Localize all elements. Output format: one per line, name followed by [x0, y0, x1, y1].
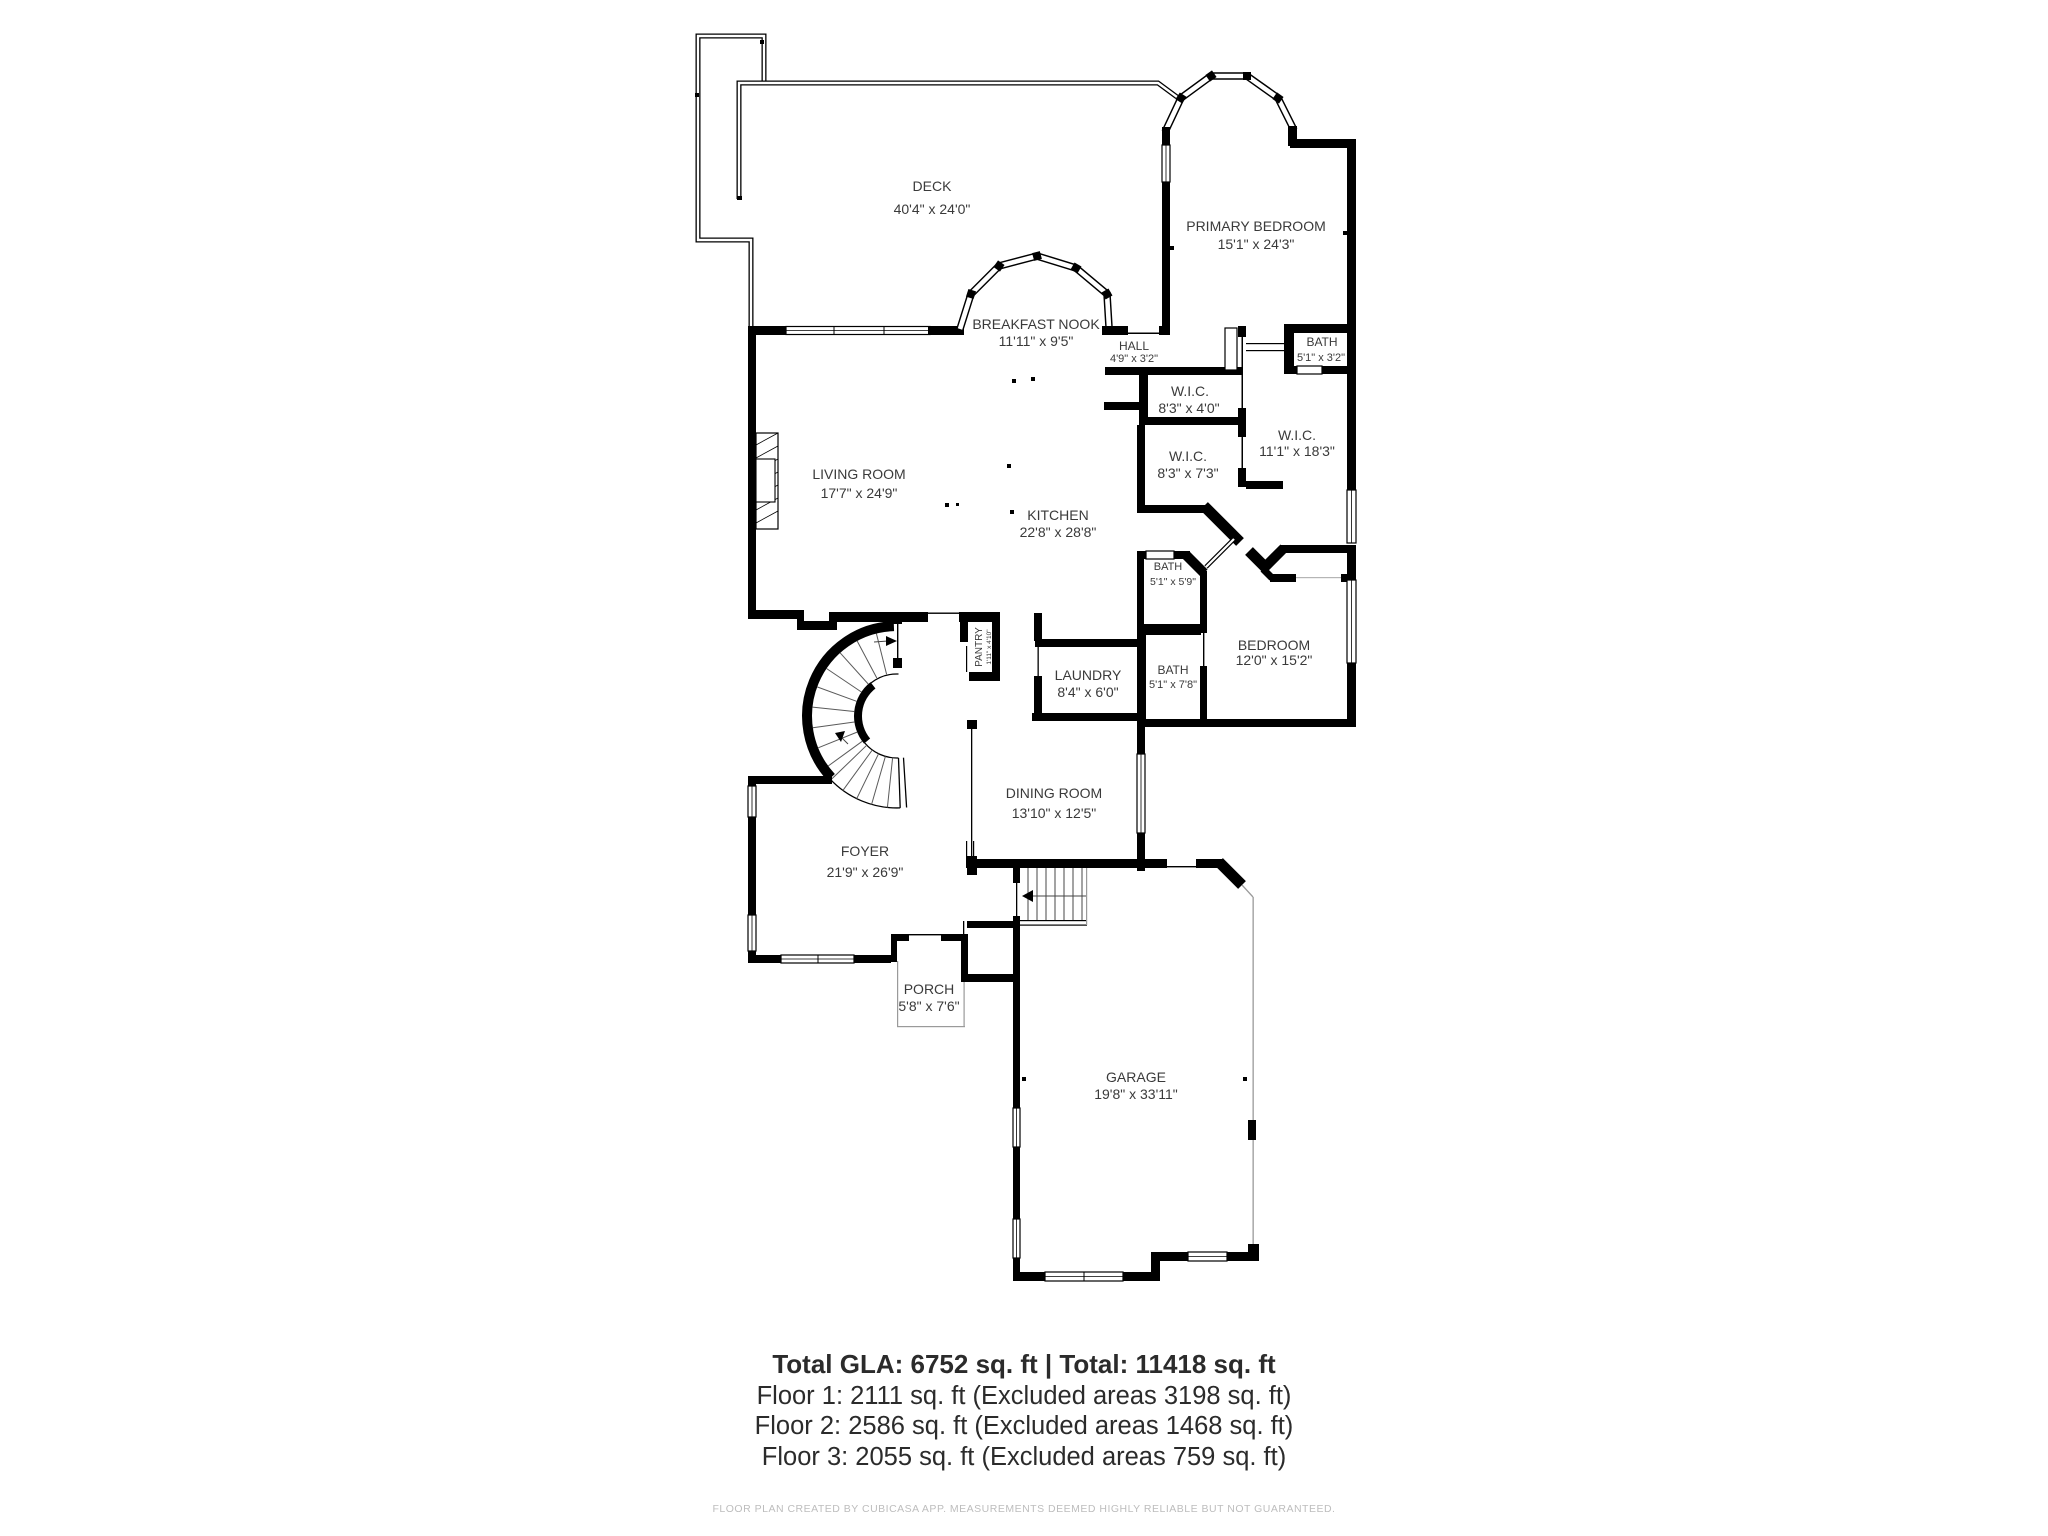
- svg-text:BATH: BATH: [1154, 561, 1183, 573]
- svg-text:Total GLA: 6752 sq. ft | Total: Total GLA: 6752 sq. ft | Total: 11418 sq…: [772, 1349, 1276, 1379]
- svg-text:8'3" x 7'3": 8'3" x 7'3": [1157, 465, 1218, 481]
- svg-text:FLOOR PLAN CREATED BY CUBICASA: FLOOR PLAN CREATED BY CUBICASA APP. MEAS…: [713, 1503, 1336, 1515]
- svg-text:W.I.C.: W.I.C.: [1169, 448, 1207, 464]
- svg-text:8'3" x 4'0": 8'3" x 4'0": [1158, 400, 1219, 416]
- svg-text:FOYER: FOYER: [841, 843, 889, 859]
- svg-text:HALL: HALL: [1119, 339, 1149, 353]
- svg-text:12'0" x 15'2": 12'0" x 15'2": [1236, 652, 1313, 668]
- svg-text:Floor 1: 2111 sq. ft (Excluded: Floor 1: 2111 sq. ft (Excluded areas 319…: [757, 1382, 1292, 1410]
- svg-text:15'1" x 24'3": 15'1" x 24'3": [1218, 236, 1295, 252]
- svg-text:13'10" x 12'5": 13'10" x 12'5": [1012, 805, 1097, 821]
- svg-text:19'8" x 33'11": 19'8" x 33'11": [1094, 1086, 1178, 1102]
- svg-text:5'1" x 3'2": 5'1" x 3'2": [1297, 352, 1345, 364]
- svg-text:BATH: BATH: [1306, 335, 1337, 349]
- svg-text:PORCH: PORCH: [904, 981, 955, 997]
- svg-text:17'7" x 24'9": 17'7" x 24'9": [821, 485, 898, 501]
- svg-text:PANTRY: PANTRY: [974, 627, 985, 667]
- svg-text:8'4" x 6'0": 8'4" x 6'0": [1057, 684, 1118, 700]
- svg-text:GARAGE: GARAGE: [1106, 1069, 1166, 1085]
- svg-text:5'1" x 5'9": 5'1" x 5'9": [1150, 576, 1196, 588]
- svg-text:11'1" x 18'3": 11'1" x 18'3": [1259, 443, 1335, 459]
- svg-text:DECK: DECK: [913, 178, 953, 194]
- svg-text:Floor 2: 2586 sq. ft (Excluded: Floor 2: 2586 sq. ft (Excluded areas 146…: [755, 1412, 1294, 1440]
- svg-text:DINING ROOM: DINING ROOM: [1006, 785, 1102, 801]
- svg-text:5'8" x 7'6": 5'8" x 7'6": [898, 998, 959, 1014]
- svg-text:BEDROOM: BEDROOM: [1238, 637, 1310, 653]
- svg-text:40'4" x 24'0": 40'4" x 24'0": [894, 201, 971, 217]
- svg-text:BREAKFAST NOOK: BREAKFAST NOOK: [972, 316, 1100, 332]
- svg-text:BATH: BATH: [1157, 663, 1188, 677]
- svg-text:1'11" x 4'10": 1'11" x 4'10": [986, 629, 993, 665]
- svg-text:4'9" x 3'2": 4'9" x 3'2": [1110, 353, 1158, 365]
- svg-text:21'9" x 26'9": 21'9" x 26'9": [827, 864, 904, 880]
- svg-text:W.I.C.: W.I.C.: [1278, 427, 1316, 443]
- svg-text:W.I.C.: W.I.C.: [1171, 383, 1209, 399]
- svg-text:KITCHEN: KITCHEN: [1027, 507, 1088, 523]
- svg-text:5'1" x 7'8": 5'1" x 7'8": [1149, 679, 1197, 691]
- svg-text:PRIMARY BEDROOM: PRIMARY BEDROOM: [1186, 218, 1326, 234]
- svg-text:LAUNDRY: LAUNDRY: [1055, 667, 1122, 683]
- svg-text:LIVING ROOM: LIVING ROOM: [812, 466, 905, 482]
- svg-text:11'11" x 9'5": 11'11" x 9'5": [999, 333, 1074, 349]
- svg-text:Floor 3: 2055 sq. ft (Excluded: Floor 3: 2055 sq. ft (Excluded areas 759…: [762, 1443, 1286, 1471]
- svg-text:22'8" x 28'8": 22'8" x 28'8": [1020, 524, 1097, 540]
